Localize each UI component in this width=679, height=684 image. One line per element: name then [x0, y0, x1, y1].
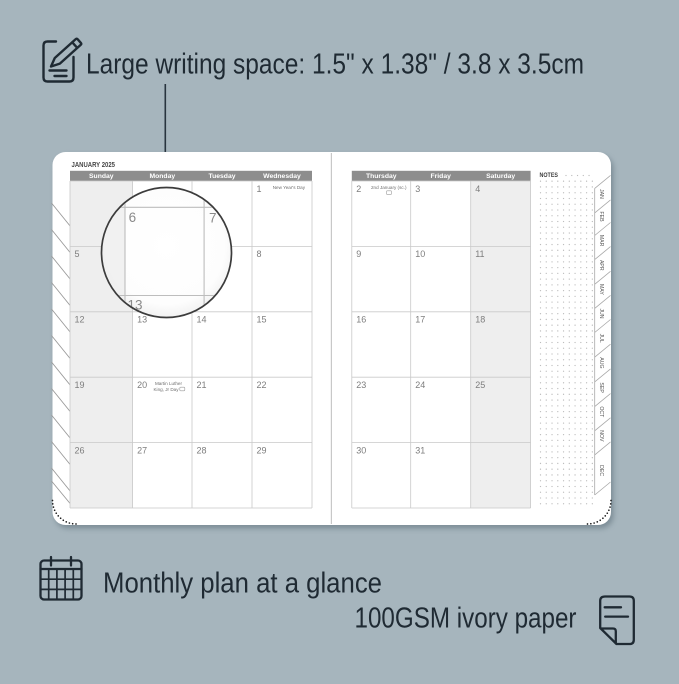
- svg-text:9: 9: [356, 249, 361, 259]
- svg-text:5: 5: [75, 249, 80, 259]
- svg-text:20: 20: [137, 380, 147, 390]
- svg-text:Saturday: Saturday: [486, 173, 515, 180]
- svg-text:16: 16: [356, 315, 366, 325]
- svg-text:JUN: JUN: [598, 308, 604, 318]
- svg-text:JAN: JAN: [598, 189, 604, 199]
- svg-text:12: 12: [75, 315, 85, 325]
- svg-text:29: 29: [257, 445, 267, 455]
- svg-text:31: 31: [415, 445, 425, 455]
- svg-text:19: 19: [75, 380, 85, 390]
- svg-text:26: 26: [75, 445, 85, 455]
- svg-text:King, Jr Day: King, Jr Day: [153, 387, 179, 392]
- svg-text:21: 21: [197, 380, 207, 390]
- svg-text:27: 27: [137, 445, 147, 455]
- svg-text:8: 8: [257, 249, 262, 259]
- svg-text:Thursday: Thursday: [366, 173, 397, 180]
- svg-text:6: 6: [129, 210, 137, 225]
- svg-text:MAY: MAY: [598, 284, 604, 295]
- svg-text:Wednesday: Wednesday: [263, 173, 301, 180]
- svg-text:DEC: DEC: [598, 465, 604, 476]
- svg-text:NOTES: NOTES: [540, 172, 559, 179]
- svg-text:Monthly plan at a glance: Monthly plan at a glance: [103, 568, 382, 600]
- svg-text:15: 15: [257, 315, 267, 325]
- svg-text:4: 4: [475, 184, 480, 194]
- svg-text:30: 30: [356, 445, 366, 455]
- svg-text:2: 2: [356, 184, 361, 194]
- svg-text:Sunday: Sunday: [89, 173, 114, 180]
- svg-text:14: 14: [197, 315, 207, 325]
- svg-text:10: 10: [415, 249, 425, 259]
- svg-text:17: 17: [415, 315, 425, 325]
- svg-text:1: 1: [257, 184, 262, 194]
- svg-text:24: 24: [415, 380, 425, 390]
- svg-text:3: 3: [415, 184, 420, 194]
- svg-text:28: 28: [197, 445, 207, 455]
- svg-text:22: 22: [257, 380, 267, 390]
- svg-text:NOV: NOV: [598, 430, 604, 442]
- svg-text:2nd January (sc.): 2nd January (sc.): [371, 185, 407, 190]
- svg-text:100GSM ivory paper: 100GSM ivory paper: [355, 603, 577, 635]
- svg-text:18: 18: [475, 315, 485, 325]
- svg-text:FEB: FEB: [598, 211, 604, 222]
- svg-text:Martin Luther: Martin Luther: [155, 381, 183, 386]
- svg-text:MAR: MAR: [598, 235, 604, 247]
- svg-text:JANUARY 2025: JANUARY 2025: [72, 160, 116, 169]
- svg-text:23: 23: [356, 380, 366, 390]
- svg-text:AUG: AUG: [598, 357, 604, 368]
- svg-text:New Year's Day: New Year's Day: [273, 185, 306, 190]
- svg-text:Friday: Friday: [430, 173, 451, 180]
- svg-text:Monday: Monday: [149, 173, 175, 180]
- svg-text:JUL: JUL: [598, 334, 604, 343]
- svg-text:APR: APR: [598, 260, 604, 271]
- svg-text:Tuesday: Tuesday: [208, 173, 235, 180]
- svg-text:Large writing space: 1.5" x 1.: Large writing space: 1.5" x 1.38" / 3.8 …: [86, 49, 584, 81]
- svg-text:25: 25: [475, 380, 485, 390]
- svg-text:13: 13: [137, 315, 147, 325]
- svg-text:7: 7: [209, 210, 217, 225]
- svg-text:OCT: OCT: [598, 406, 604, 418]
- svg-text:SEP: SEP: [598, 382, 604, 393]
- svg-text:11: 11: [475, 249, 484, 259]
